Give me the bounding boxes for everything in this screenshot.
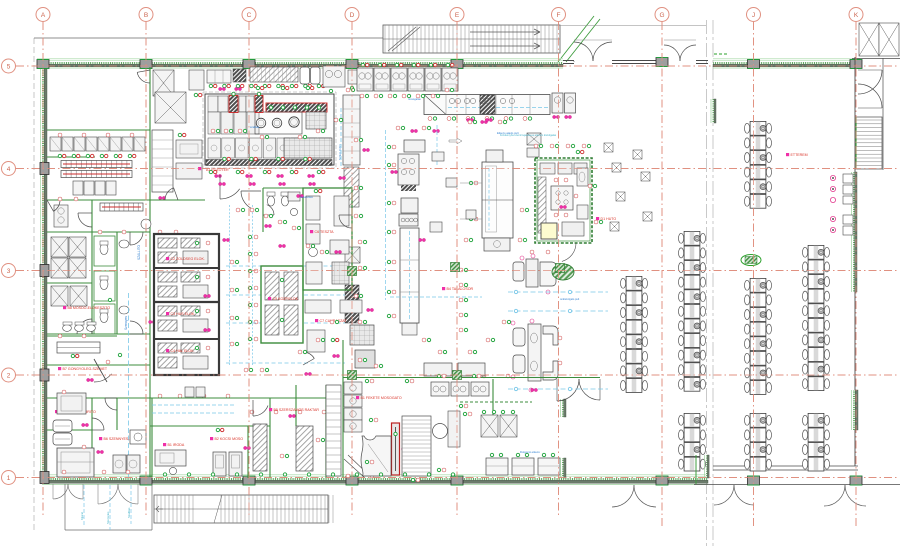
svg-text:SZALLITO: SZALLITO xyxy=(137,244,141,260)
svg-text:B2 KOCSI MOSO: B2 KOCSI MOSO xyxy=(215,437,244,441)
svg-text:B1 IRODA: B1 IRODA xyxy=(168,443,185,447)
svg-text:Szennyes: Szennyes xyxy=(124,316,128,330)
svg-text:4: 4 xyxy=(7,166,11,173)
svg-text:Szallitas: Szallitas xyxy=(127,507,131,518)
svg-text:5: 5 xyxy=(7,63,11,70)
svg-text:G: G xyxy=(659,12,664,19)
svg-text:Szemetes: Szemetes xyxy=(106,511,110,524)
svg-text:F: F xyxy=(557,12,561,19)
svg-text:Kijarat: Kijarat xyxy=(80,512,84,520)
svg-text:B5 SZERSZAMOS RAKTAR: B5 SZERSZAMOS RAKTAR xyxy=(274,408,320,412)
svg-text:B7 GONGYOLEG-SZEMET: B7 GONGYOLEG-SZEMET xyxy=(63,367,108,371)
svg-text:C3 HUS ELOK.: C3 HUS ELOK. xyxy=(171,312,196,316)
svg-text:K: K xyxy=(854,12,859,19)
svg-text:C4 HAL ELOK.: C4 HAL ELOK. xyxy=(171,349,195,353)
svg-text:C6 TESZTA: C6 TESZTA xyxy=(315,230,335,234)
svg-text:J: J xyxy=(752,12,755,19)
svg-text:szallitas: szallitas xyxy=(250,125,260,129)
svg-text:2: 2 xyxy=(7,372,11,379)
svg-text:C2 ZOLDSEG ELOK.: C2 ZOLDSEG ELOK. xyxy=(171,257,205,261)
svg-text:E: E xyxy=(455,12,460,19)
svg-text:B4 TALALOSOR: B4 TALALOSOR xyxy=(447,287,474,291)
svg-text:D1 HUTO: D1 HUTO xyxy=(601,217,617,221)
svg-text:Fozokonyha uzemi bejarata es e: Fozokonyha uzemi bejarata es etterem kis… xyxy=(500,134,557,137)
svg-text:onkiszolgalo pult: onkiszolgalo pult xyxy=(560,297,579,301)
svg-text:D: D xyxy=(350,12,355,19)
svg-text:C: C xyxy=(247,12,252,19)
svg-text:1: 1 xyxy=(7,475,11,482)
svg-text:elokeszites: elokeszites xyxy=(300,195,314,199)
svg-text:mosogatas: mosogatas xyxy=(408,97,421,101)
svg-text:B8 MOSDO-ELOKESZITO: B8 MOSDO-ELOKESZITO xyxy=(68,306,111,310)
svg-text:C5 KOZP.ELOK.: C5 KOZP.ELOK. xyxy=(273,297,300,301)
svg-text:3: 3 xyxy=(7,268,11,275)
svg-text:B: B xyxy=(144,12,148,19)
svg-text:ETTEREM: ETTEREM xyxy=(791,153,808,157)
svg-text:Dolgozoi etkezo: Dolgozoi etkezo xyxy=(520,450,540,454)
svg-text:A: A xyxy=(41,12,46,19)
svg-text:B1 FEKETE MOSOGATO: B1 FEKETE MOSOGATO xyxy=(361,396,402,400)
